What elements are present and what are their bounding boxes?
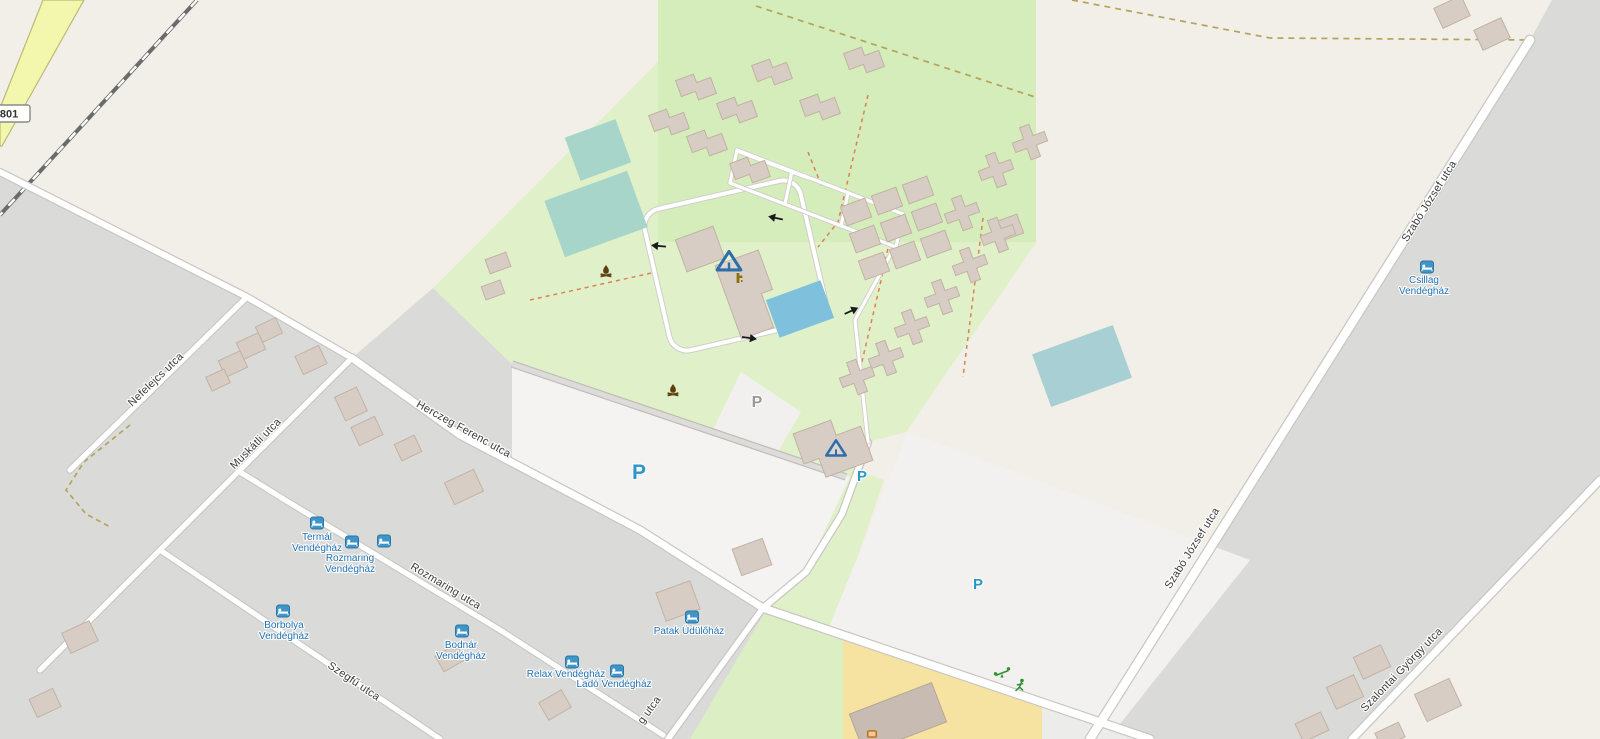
- place-label-patak-udulohaz[interactable]: Patak Üdülőház: [654, 625, 725, 637]
- parking-icon: P: [752, 394, 763, 411]
- lodging-bed-icon[interactable]: [566, 656, 579, 668]
- place-label-lado-vendeghaz[interactable]: Ladó Vendégház: [576, 679, 651, 690]
- lodging-bed-icon[interactable]: [311, 517, 324, 529]
- lodging-bed-icon[interactable]: [456, 625, 469, 637]
- bench-icon: [868, 731, 877, 737]
- lodging-bed-icon[interactable]: [1421, 261, 1434, 273]
- lodging-bed-icon[interactable]: [611, 665, 624, 677]
- place-label-borbolya-vendeghaz[interactable]: BorbolyaVendégház: [259, 620, 309, 642]
- lodging-bed-icon[interactable]: [686, 611, 699, 623]
- lodging-bed-icon[interactable]: [346, 536, 359, 548]
- parking-icon: P: [632, 461, 646, 484]
- parking-icon: P: [857, 468, 867, 485]
- road-ref-badge: 801: [0, 105, 30, 122]
- map-canvas: 801 PPPP Nefelejcs utcaMuskátli utcaHerc…: [0, 0, 1600, 739]
- place-label-rozmaring-vendeghaz[interactable]: RozmaringVendégház: [325, 553, 375, 575]
- parking-icon: P: [973, 576, 983, 593]
- map-viewport[interactable]: 801 PPPP Nefelejcs utcaMuskátli utcaHerc…: [0, 0, 1600, 739]
- road-ref-text: 801: [0, 109, 18, 121]
- lodging-bed-icon[interactable]: [277, 605, 290, 617]
- lodging-bed-icon[interactable]: [378, 535, 391, 547]
